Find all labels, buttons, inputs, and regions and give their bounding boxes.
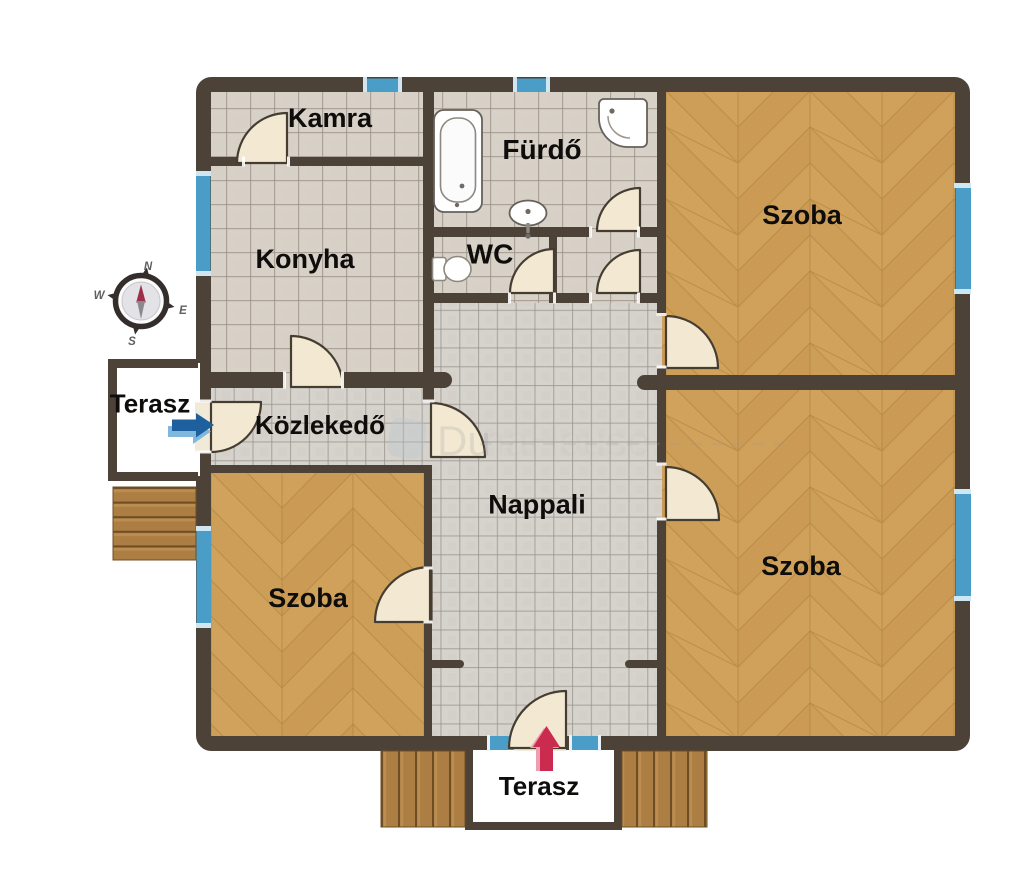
svg-text:Nappali: Nappali	[488, 490, 586, 520]
svg-text:Szoba: Szoba	[268, 583, 348, 613]
svg-text:W: W	[94, 290, 106, 302]
svg-text:Terasz: Terasz	[110, 389, 190, 419]
svg-text:Konyha: Konyha	[255, 244, 355, 274]
svg-text:naHouse: naHouse	[482, 417, 650, 464]
svg-text:E: E	[179, 305, 187, 317]
svg-text:N: N	[144, 261, 153, 273]
svg-text:Kamra: Kamra	[288, 103, 373, 133]
svg-text:Szoba: Szoba	[761, 551, 841, 581]
svg-text:Fürdő: Fürdő	[502, 134, 581, 165]
svg-text:Terasz: Terasz	[499, 771, 579, 801]
svg-text:Közlekedő: Közlekedő	[255, 410, 385, 440]
svg-text:Szoba: Szoba	[762, 200, 842, 230]
svg-text:WC: WC	[467, 239, 514, 270]
svg-text:S: S	[128, 336, 136, 348]
